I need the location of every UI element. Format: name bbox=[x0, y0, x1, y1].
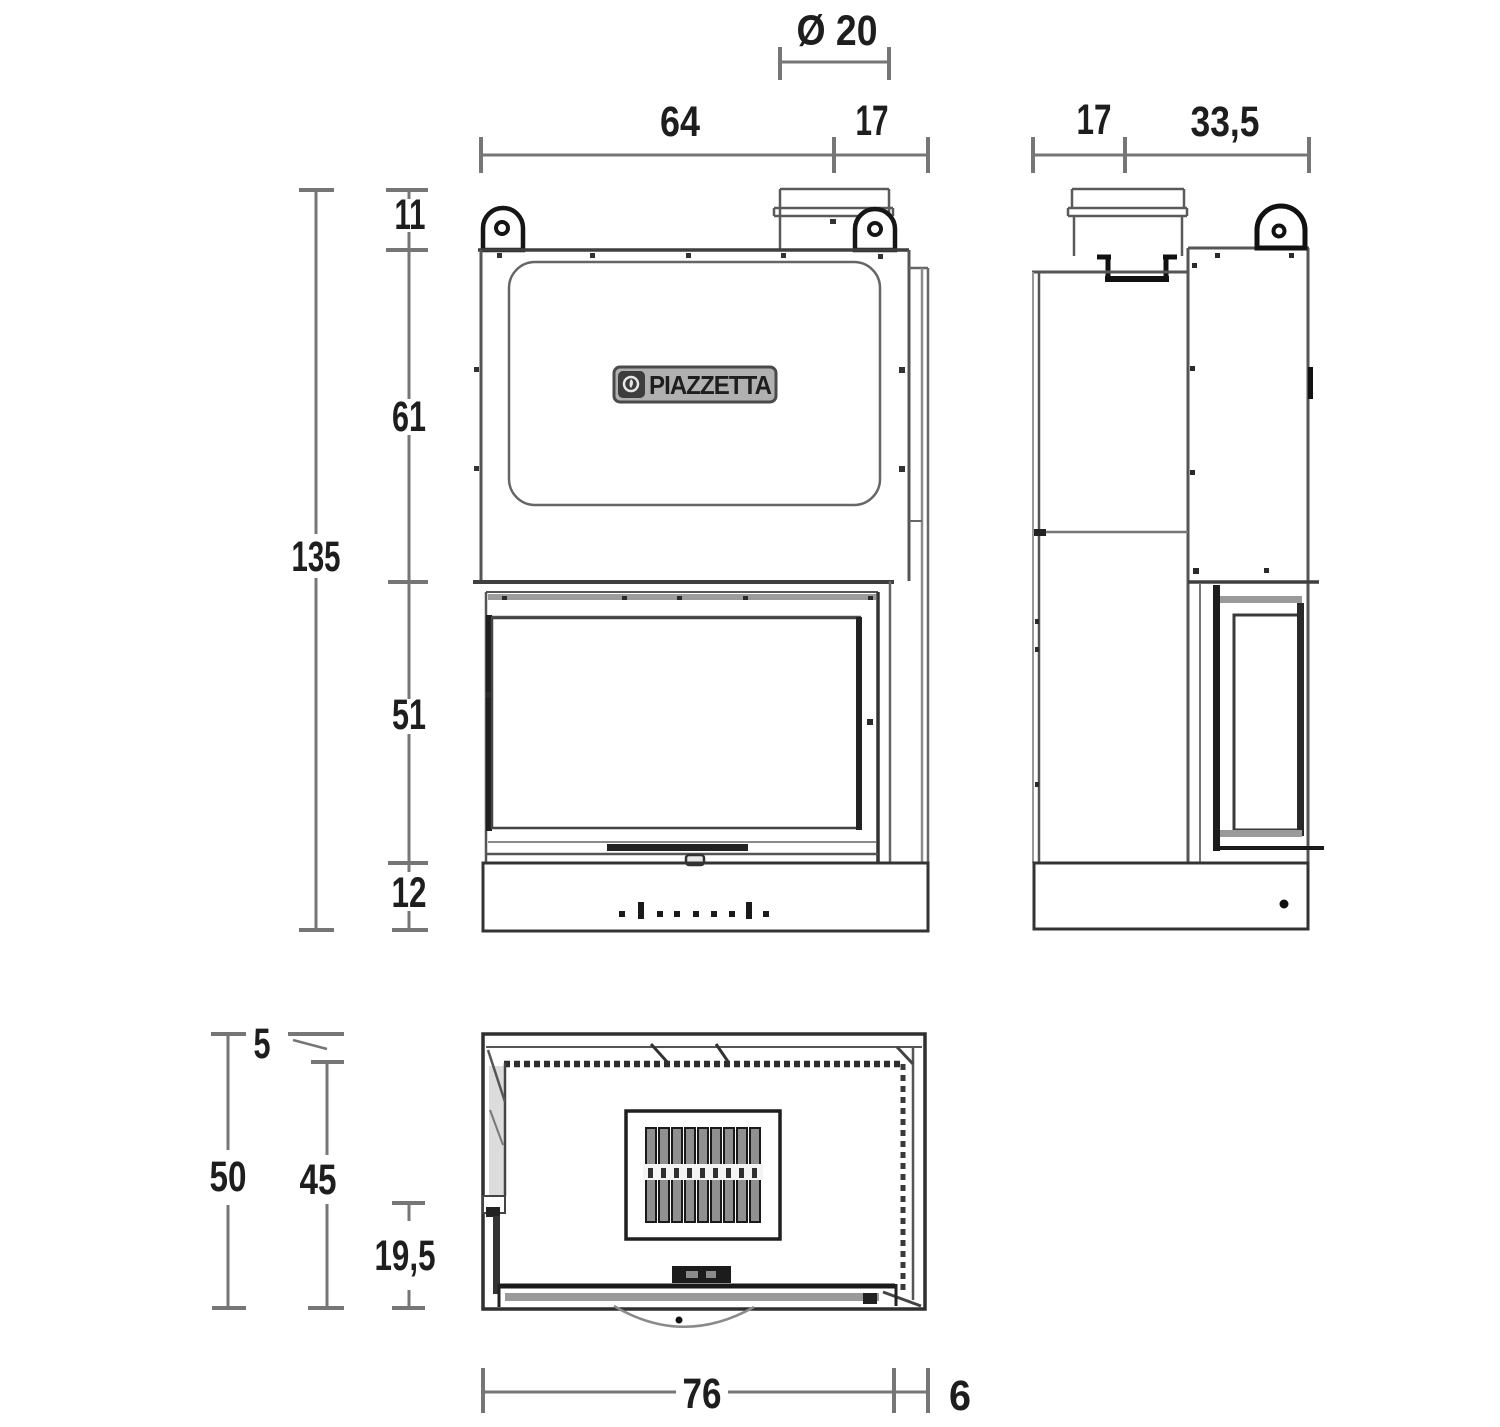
svg-text:64: 64 bbox=[660, 98, 700, 146]
svg-text:135: 135 bbox=[292, 533, 341, 581]
svg-text:17: 17 bbox=[856, 97, 889, 145]
svg-text:33,5: 33,5 bbox=[1191, 98, 1260, 146]
svg-text:6: 6 bbox=[949, 1372, 971, 1420]
svg-text:19,5: 19,5 bbox=[375, 1232, 436, 1280]
svg-text:51: 51 bbox=[392, 691, 426, 739]
svg-text:PIAZZETTA: PIAZZETTA bbox=[649, 370, 772, 400]
svg-text:5: 5 bbox=[254, 1020, 271, 1068]
svg-text:50: 50 bbox=[210, 1153, 247, 1201]
svg-text:61: 61 bbox=[392, 393, 426, 441]
svg-text:11: 11 bbox=[395, 191, 426, 239]
svg-text:76: 76 bbox=[683, 1370, 722, 1418]
svg-text:12: 12 bbox=[392, 869, 427, 917]
svg-text:17: 17 bbox=[1077, 96, 1112, 144]
svg-text:45: 45 bbox=[300, 1156, 337, 1204]
svg-text:Ø 20: Ø 20 bbox=[797, 7, 878, 55]
